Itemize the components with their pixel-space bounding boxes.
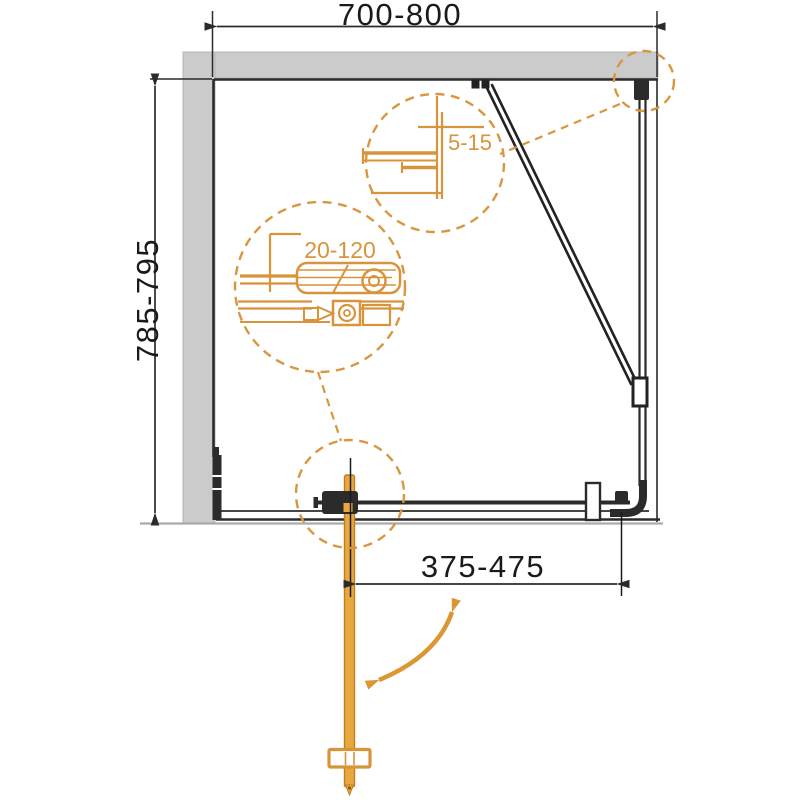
pivot-hinge-corner bbox=[586, 480, 643, 520]
hinge-block bbox=[615, 491, 628, 504]
callout-hinge-mechanism bbox=[235, 202, 405, 372]
door-open-bar bbox=[345, 475, 355, 795]
door-pivot-block bbox=[322, 491, 358, 514]
installation-diagram: 700-800 785-795 375-475 5-15 bbox=[0, 0, 800, 800]
width-range-label: 700-800 bbox=[338, 0, 462, 32]
brace-wall-bracket bbox=[472, 80, 480, 89]
hinge-pin-outer bbox=[339, 305, 355, 321]
detail-callout-circles bbox=[235, 51, 674, 548]
brace-panel-connector bbox=[633, 378, 647, 406]
side-panel-top-bracket bbox=[634, 79, 649, 100]
opening-range-label: 375-475 bbox=[421, 549, 545, 584]
hinge-tab bbox=[586, 483, 600, 520]
hinge-pin-inner bbox=[344, 310, 350, 316]
wall-top bbox=[183, 52, 658, 78]
leader-corner-to-profile bbox=[500, 104, 620, 154]
wall-mount-bracket bbox=[213, 447, 222, 520]
wall-profile-label: 5-15 bbox=[448, 130, 492, 155]
callout-wall-profile bbox=[366, 94, 504, 232]
diagram-canvas: 700-800 785-795 375-475 5-15 bbox=[0, 0, 800, 800]
support-brace bbox=[472, 80, 648, 407]
door-bar-tip-dot bbox=[348, 786, 351, 789]
detail-wall-profile: 5-15 bbox=[363, 96, 492, 199]
door-swing-arrow bbox=[379, 612, 452, 680]
detail-hinge-mechanism: 20-120 bbox=[238, 234, 404, 325]
leader-hinge-to-handle bbox=[318, 372, 341, 441]
hinge-adjust-label: 20-120 bbox=[304, 237, 376, 263]
door-leaf-end-cap bbox=[314, 497, 319, 508]
brace-wall-bracket2 bbox=[482, 80, 490, 89]
depth-range-label: 785-795 bbox=[130, 238, 165, 362]
door-handle-crossbar bbox=[329, 750, 370, 768]
hinge-knob-outer bbox=[363, 270, 386, 293]
wall-left bbox=[183, 52, 215, 523]
